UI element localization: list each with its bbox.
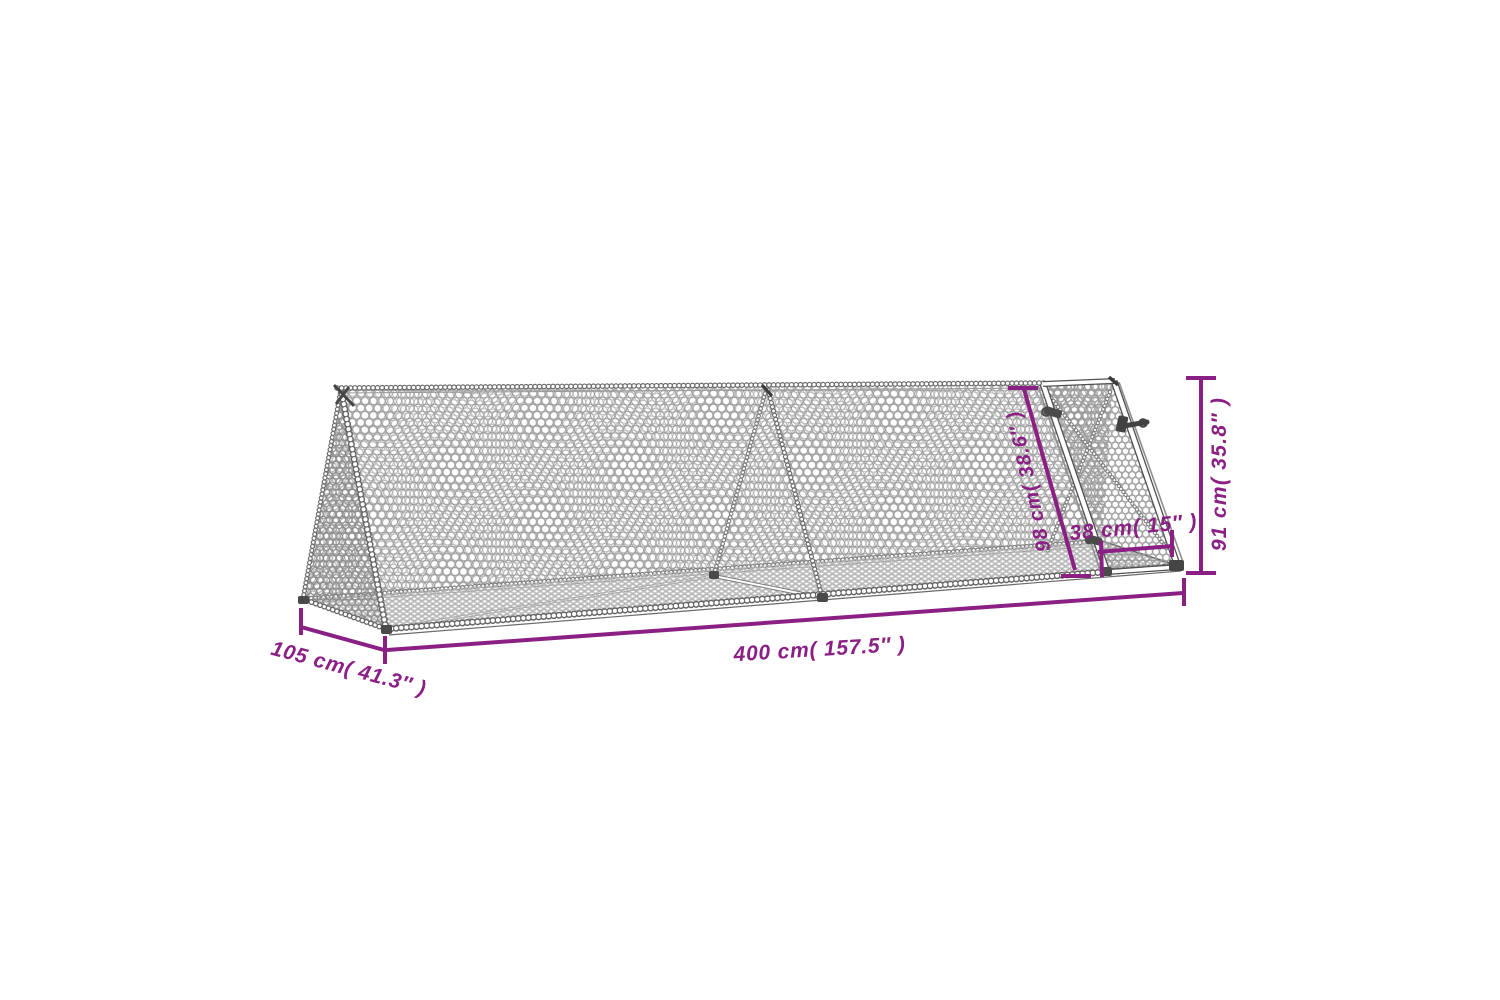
svg-text:91 cm( 35.8″ ): 91 cm( 35.8″ ) xyxy=(1208,397,1231,551)
svg-text:105 cm( 41.3″ ): 105 cm( 41.3″ ) xyxy=(269,637,429,701)
svg-text:400 cm( 157.5″ ): 400 cm( 157.5″ ) xyxy=(732,633,906,667)
